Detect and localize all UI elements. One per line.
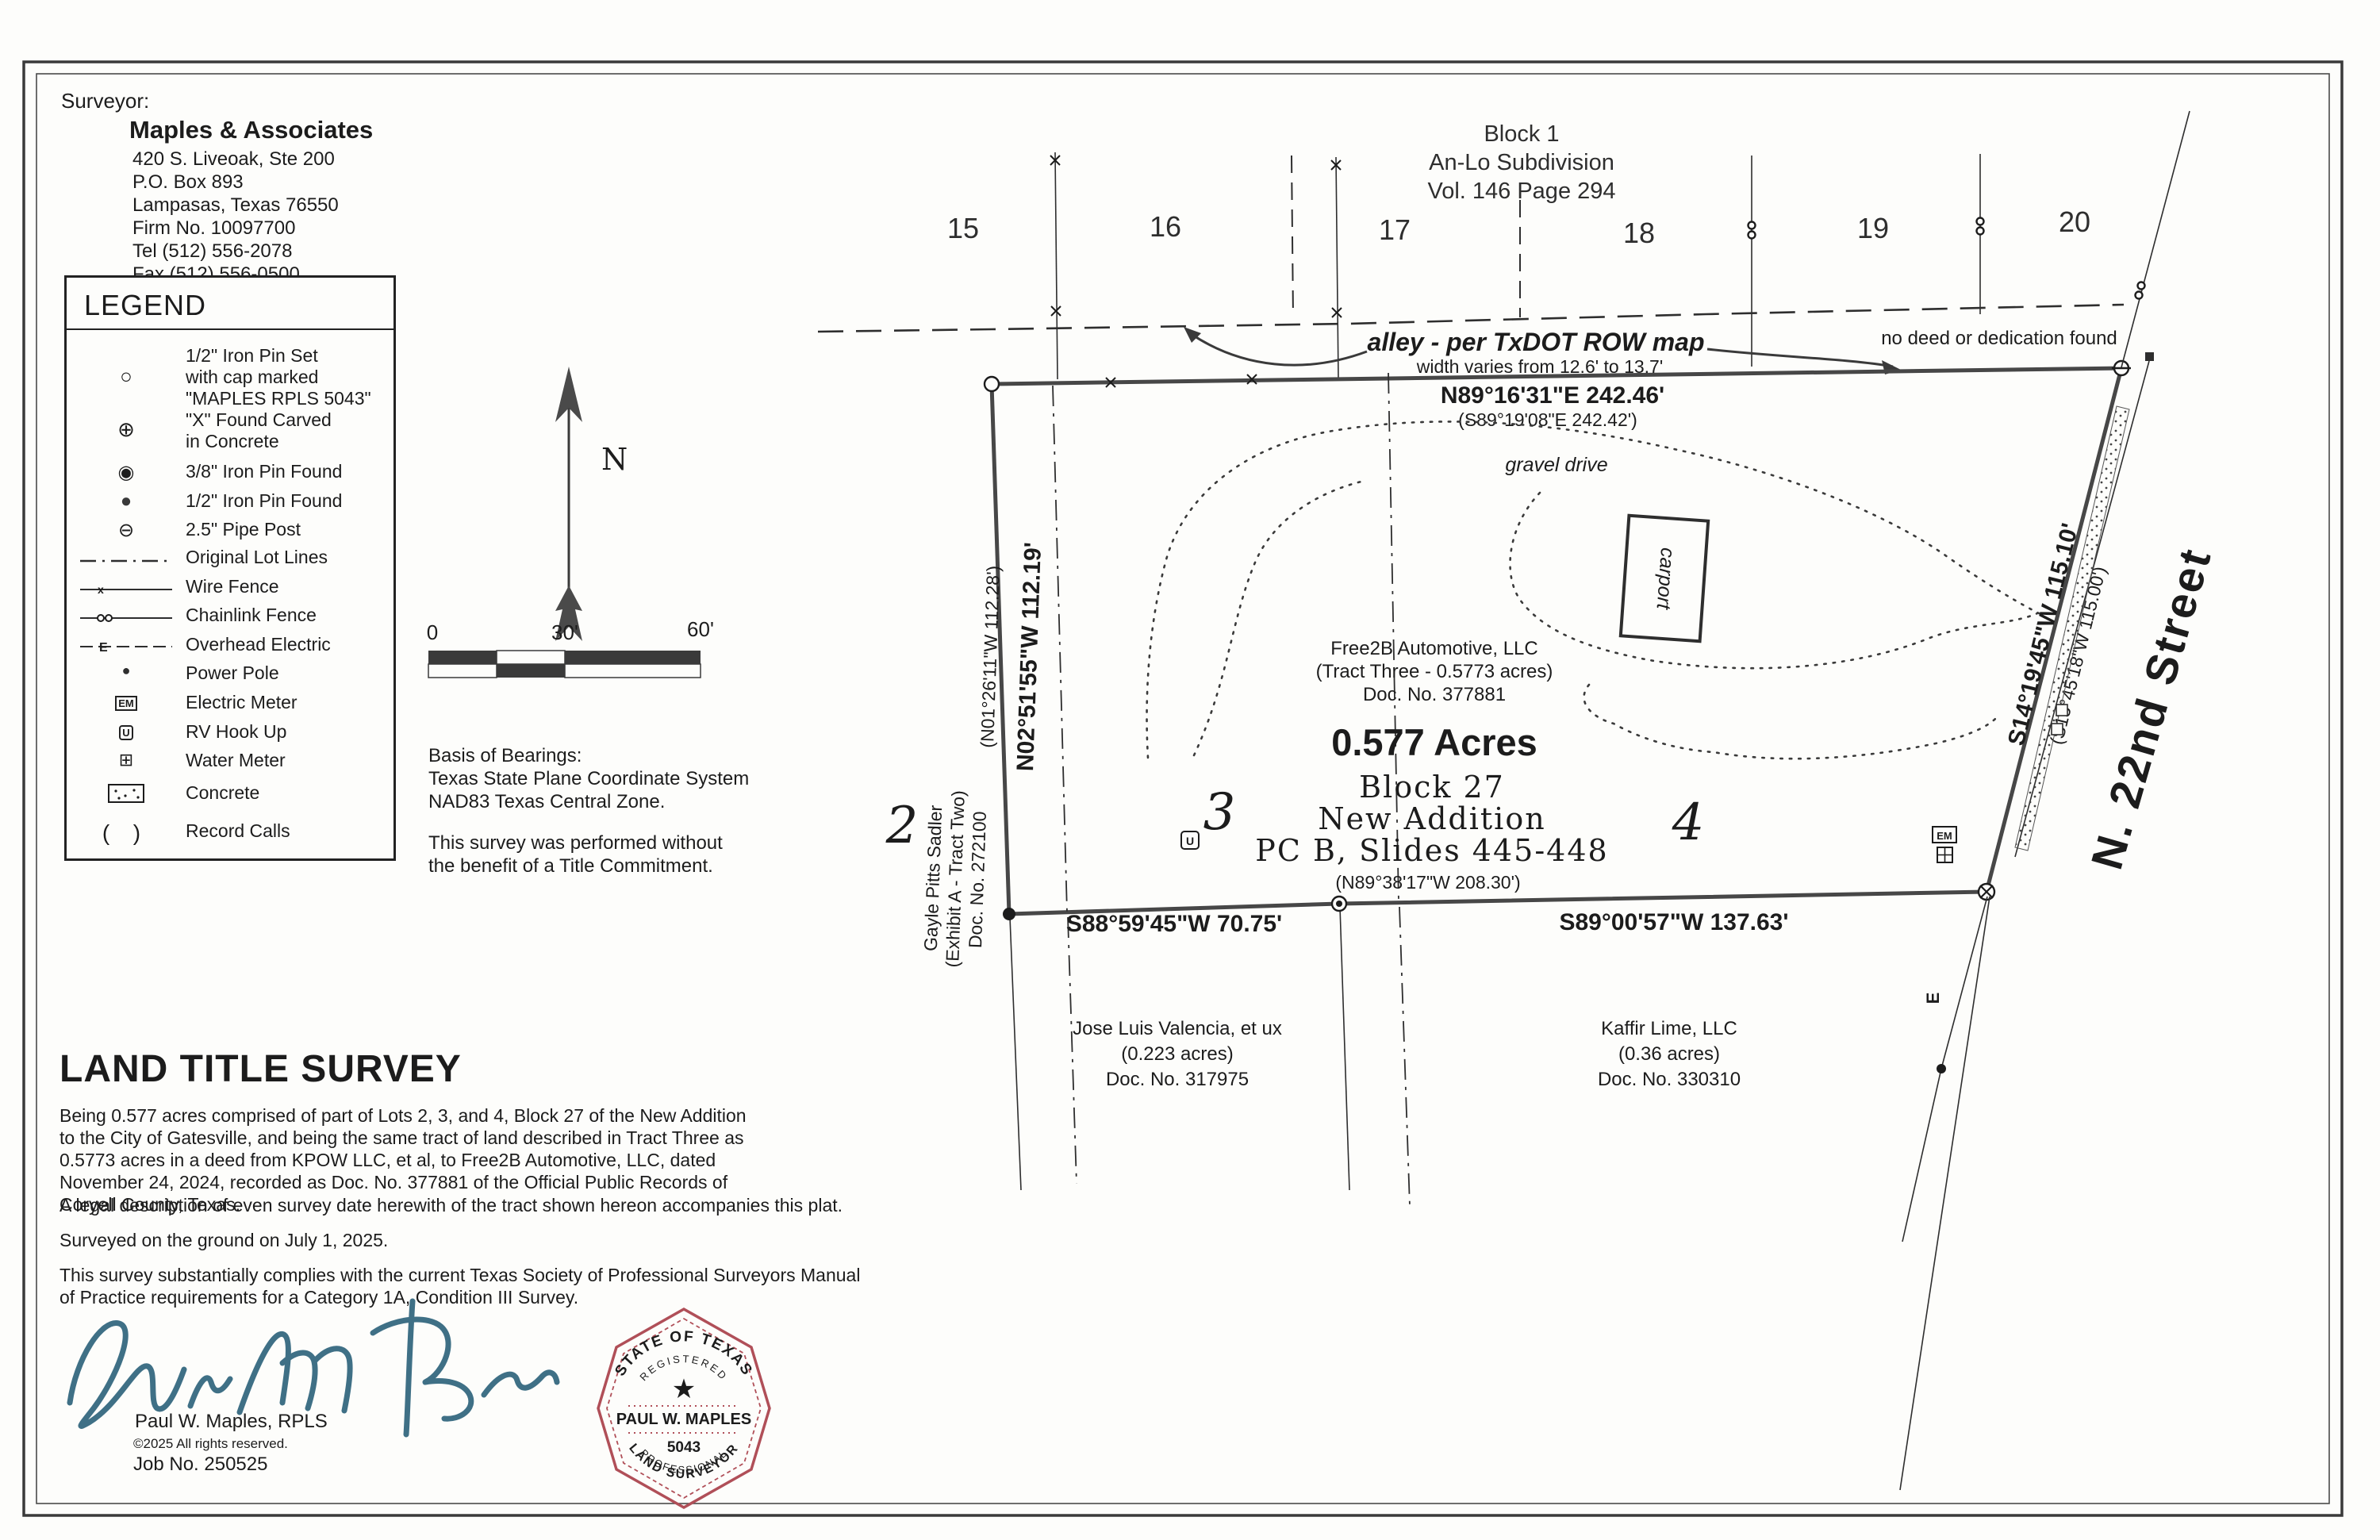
utilities-se: EM E	[1902, 827, 1987, 1242]
rv-hook-up-icon: U	[1181, 831, 1199, 849]
surveyor-name: Maples & Associates	[129, 116, 373, 144]
bearing-south-east: S89°00'57"W 137.63'	[1559, 909, 1788, 935]
iron-pin-found-3-8-icon: ◉	[67, 461, 186, 484]
tract-addition: New Addition	[1318, 801, 1545, 836]
svg-text:Gayle Pitts Sadler: Gayle Pitts Sadler	[920, 805, 946, 951]
alley-label: alley - per TxDOT ROW map	[1368, 328, 1705, 356]
stamp-name: PAUL W. MAPLES	[616, 1411, 751, 1428]
svg-text:U: U	[1186, 835, 1194, 847]
iron-pin-found-3-8-icon	[1332, 897, 1346, 911]
legend-divider	[67, 328, 393, 330]
bearing-west-record: (N01°26'11"W 112.28')	[977, 565, 1004, 748]
gravel-drive-label: gravel drive	[1505, 454, 1607, 476]
rv-hook-up-icon: U	[67, 721, 186, 743]
overhead-electric-icon: E	[67, 637, 186, 659]
survey-date-note: Surveyed on the ground on July 1, 2025.	[59, 1229, 388, 1251]
legend-title: LEGEND	[84, 289, 206, 322]
electric-meter-icon: EM	[67, 692, 186, 714]
stamp-number: 5043	[667, 1439, 701, 1456]
survey-sheet: Block 1 An-Lo Subdivision Vol. 146 Page …	[0, 0, 2380, 1540]
svg-text:EM: EM	[1937, 830, 1952, 842]
iron-pin-set-icon: ○	[67, 364, 186, 389]
surveyor-address: 420 S. Liveoak, Ste 200 P.O. Box 893 Lam…	[132, 148, 339, 286]
block27-lot-2: 2	[885, 797, 919, 855]
basis-of-bearings-note: Basis of Bearings: Texas State Plane Coo…	[428, 744, 749, 813]
job-number: Job No. 250525	[133, 1454, 267, 1476]
chainlink-fence-icon	[67, 608, 186, 630]
svg-text:E: E	[99, 641, 108, 654]
svg-text:carport: carport	[1653, 547, 1679, 611]
registration-stamp: STATE OF TEXAS REGISTERED ★ PAUL W. MAPL…	[598, 1309, 770, 1507]
tract-acreage: 0.577 Acres	[1331, 721, 1537, 763]
wire-fence-icon: x	[67, 579, 186, 601]
pipe-post-icon	[2112, 361, 2131, 375]
no-deed-note: no deed or dedication found	[1881, 328, 2117, 349]
north-arrow-label: N	[601, 442, 628, 477]
north-arrow: N	[555, 367, 628, 641]
adjoiner-south1-doc: Doc. No. 317975	[1106, 1069, 1249, 1090]
bearing-south-record: (N89°38'17"W 208.30')	[1335, 872, 1520, 893]
overhead-electric-e-label: E	[1923, 993, 1943, 1004]
block1-lot-19: 19	[1857, 212, 1889, 244]
pipe-post-icon: ⊖	[67, 519, 186, 542]
block27-lot-3: 3	[1203, 783, 1236, 842]
adjoiner-south2-name: Kaffir Lime, LLC	[1601, 1018, 1737, 1039]
surveyor-signature-name: Paul W. Maples, RPLS	[135, 1411, 328, 1433]
block1-lot-15: 15	[947, 212, 979, 244]
tract-slides: PC B, Slides 445-448	[1255, 833, 1608, 868]
x-found-carved-icon: ⊕	[67, 417, 186, 442]
legend-box: LEGEND ○ 1/2" Iron Pin Set with cap mark…	[64, 275, 396, 861]
carport-label: carport	[1653, 547, 1679, 611]
water-meter-icon: ⊞	[67, 750, 186, 770]
power-pole-icon: ●	[67, 662, 186, 679]
stamp-star: ★	[672, 1374, 696, 1404]
scale-60: 60'	[687, 617, 714, 641]
title-commitment-note: This survey was performed without the be…	[428, 831, 723, 878]
block1-lot-16: 16	[1150, 210, 1181, 243]
iron-pin-set-icon	[985, 377, 999, 391]
block1-lot-20: 20	[2059, 205, 2090, 238]
tract-doc: Doc. No. 377881	[1363, 684, 1506, 705]
svg-text:E: E	[1923, 993, 1943, 1004]
adjoiner-south2-note: (0.36 acres)	[1618, 1043, 1720, 1065]
surveyor-label: Surveyor:	[61, 89, 149, 113]
subdivision-line3: Vol. 146 Page 294	[1427, 179, 1615, 204]
tract-block: Block 27	[1359, 770, 1505, 805]
power-pole-icon	[1937, 1064, 1946, 1073]
iron-pin-found-1-2-icon: ●	[67, 490, 186, 513]
record-calls-icon: ( )	[67, 820, 186, 846]
svg-text:x: x	[98, 583, 104, 596]
adjoiner-south2-doc: Doc. No. 330310	[1598, 1069, 1741, 1090]
svg-text:Doc. No. 272100: Doc. No. 272100	[965, 811, 990, 948]
subdivision-line2: An-Lo Subdivision	[1429, 150, 1614, 175]
block1-lot-17: 17	[1379, 213, 1411, 246]
adjoiner-south1-note: (0.223 acres)	[1121, 1043, 1233, 1065]
adjoiner-south1-name: Jose Luis Valencia, et ux	[1073, 1018, 1282, 1039]
scale-30: 30'	[551, 620, 578, 644]
svg-text:N02°51'55"W 112.19': N02°51'55"W 112.19'	[1012, 542, 1046, 772]
bearing-south-west: S88°59'45"W 70.75'	[1066, 911, 1282, 937]
tract-owner: Free2B Automotive, LLC	[1330, 638, 1537, 659]
bearing-west: N02°51'55"W 112.19'	[1012, 542, 1046, 772]
electric-meter-icon: EM	[1933, 827, 1956, 843]
compliance-note: This survey substantially complies with …	[59, 1264, 869, 1308]
water-meter-icon	[1937, 847, 1952, 862]
subdivision-line1: Block 1	[1484, 121, 1559, 147]
land-title-survey-heading: LAND TITLE SURVEY	[59, 1047, 462, 1091]
block27-lot-4: 4	[1672, 793, 1705, 852]
iron-pin-found-icon	[1003, 908, 1015, 920]
adjoiner-west: Gayle Pitts Sadler (Exhibit A - Tract Tw…	[919, 789, 991, 969]
tract-note: (Tract Three - 0.5773 acres)	[1316, 661, 1553, 682]
legal-description-note: A legal description of even survey date …	[59, 1194, 853, 1216]
scale-0: 0	[427, 620, 438, 644]
block1-lot-18: 18	[1623, 217, 1655, 249]
copyright-note: ©2025 All rights reserved.	[133, 1436, 288, 1452]
original-lot-lines-icon	[67, 550, 186, 572]
svg-text:(N01°26'11"W 112.28'): (N01°26'11"W 112.28')	[977, 565, 1004, 748]
scale-bar: 0 30' 60'	[427, 617, 714, 678]
concrete-icon	[67, 784, 186, 808]
bearing-north: N89°16'31"E 242.46'	[1441, 382, 1664, 409]
